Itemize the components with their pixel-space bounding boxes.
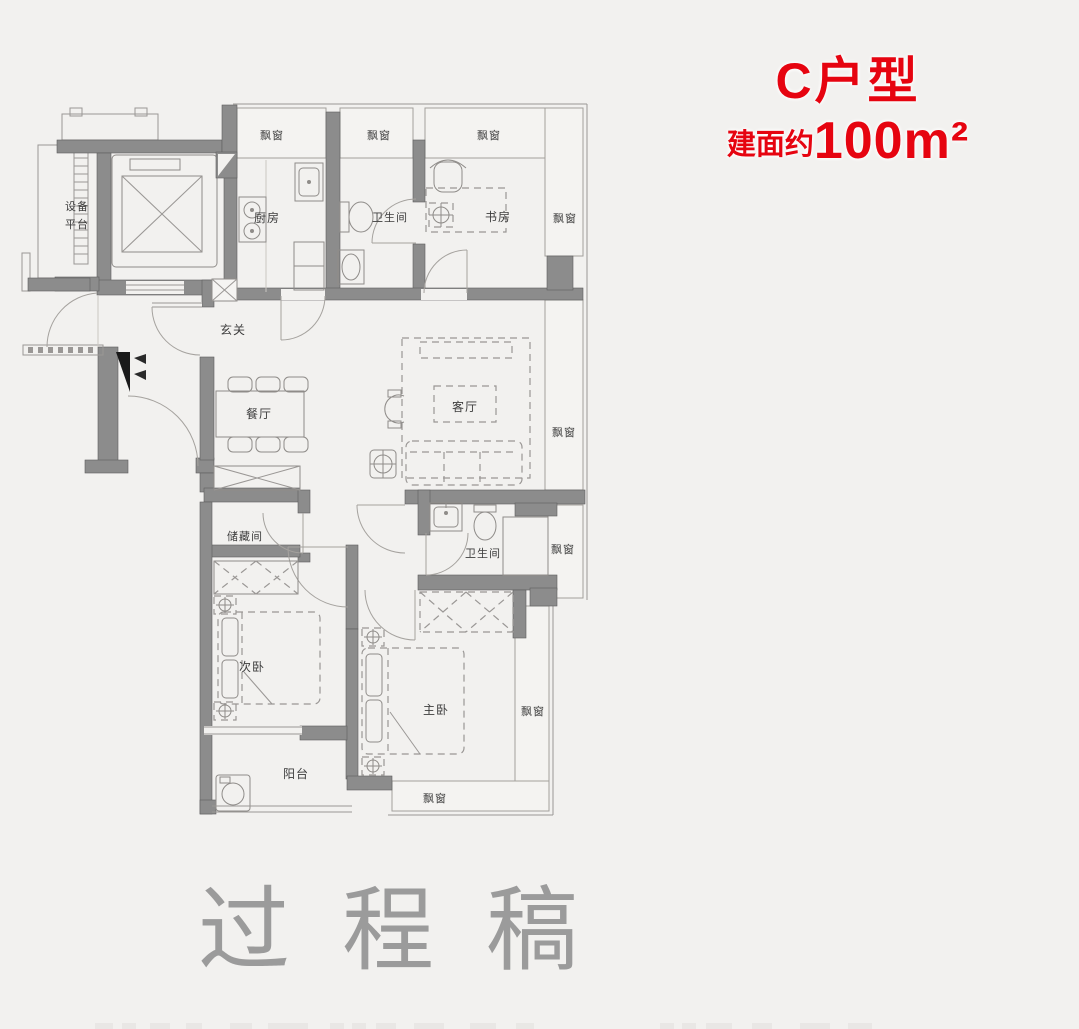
label-bay-window: 飘窗: [551, 542, 575, 556]
unit-type-title: C户型: [712, 54, 984, 109]
unit-area-line: 建面约100m²: [712, 111, 984, 171]
bed: [218, 612, 320, 704]
label-bathroom2: 卫生间: [465, 546, 501, 560]
elevator: [112, 152, 237, 301]
living-furniture: [370, 338, 530, 485]
elevator-car-door: [130, 159, 180, 170]
bedroom2-furniture: [214, 561, 320, 720]
armchair: [385, 390, 404, 428]
roof-ledge: [62, 114, 158, 140]
shaft-corner-box: [216, 152, 237, 178]
label-bay-window: 飘窗: [552, 425, 576, 439]
dining-chair: [228, 377, 252, 392]
scale-bar: [23, 345, 103, 355]
kitchen-sink-icon: [295, 163, 323, 201]
label-second-bedroom: 次卧: [239, 660, 265, 674]
label-storage: 储藏间: [227, 529, 263, 543]
nightstand-lamp-icon: [214, 596, 236, 614]
wardrobe: [214, 561, 298, 594]
label-equipment-platform-2: 平台: [65, 217, 89, 231]
duct-cross-box: [212, 279, 237, 301]
equipment-platform: [22, 108, 158, 291]
label-dining: 餐厅: [246, 406, 272, 421]
room-labels: 设备 平台 厨房 卫生间 书房 玄关 餐厅 客厅 储藏间 卫生间 次卧 主卧 阳…: [65, 128, 577, 805]
dining-chair: [284, 377, 308, 392]
kitchen-fixtures: [239, 160, 324, 292]
outside-door-arc: [47, 293, 97, 347]
hall-door-arc: [357, 505, 405, 553]
label-balcony: 阳台: [283, 766, 309, 781]
label-bathroom1: 卫生间: [372, 210, 408, 224]
sideboard-cabinet: [214, 466, 300, 490]
unit-title-block: C户型 建面约100m²: [712, 54, 984, 171]
study-door-arc: [424, 250, 467, 293]
label-living: 客厅: [452, 399, 478, 414]
bed: [362, 648, 464, 754]
dining-chair: [256, 377, 280, 392]
shower-area: [503, 517, 548, 575]
fridge-icon: [294, 242, 324, 290]
bay-window-study-right: [545, 108, 583, 256]
dining-chair: [228, 437, 252, 452]
toilet-icon: [474, 505, 496, 540]
bottom-crop-artifact: [95, 1023, 872, 1029]
area-value: 100m²: [814, 112, 969, 170]
bath1-fixtures: [338, 202, 373, 284]
label-master-bedroom: 主卧: [423, 703, 449, 717]
tv-console: [420, 342, 512, 358]
label-entry: 玄关: [220, 322, 246, 337]
label-study: 书房: [485, 209, 511, 224]
bath2-door-arc: [426, 533, 468, 575]
ledge-notch: [70, 108, 82, 116]
label-bay-window: 飘窗: [477, 128, 501, 142]
label-bay-window: 飘窗: [367, 128, 391, 142]
basin-icon: [338, 250, 364, 284]
floor-lamp-icon: [370, 450, 396, 478]
label-bay-window: 飘窗: [521, 704, 545, 718]
nightstand-lamp-icon: [362, 628, 384, 646]
entry-door-arc: [152, 307, 200, 355]
kitchen-door-arc: [281, 296, 325, 340]
wardrobe: [420, 592, 513, 632]
nightstand-lamp-icon: [362, 757, 384, 775]
bay-window-living: [545, 300, 583, 490]
label-bay-window: 飘窗: [423, 791, 447, 805]
direction-arrow-icon: [134, 354, 146, 364]
vanity-icon: [430, 503, 462, 531]
label-bay-window: 飘窗: [260, 128, 284, 142]
area-prefix: 建面约: [727, 129, 814, 161]
draft-watermark: 过程稿: [198, 856, 630, 989]
dining-furniture: [214, 377, 308, 490]
ledge-notch: [135, 108, 147, 116]
floorplan-page: 设备 平台 厨房 卫生间 书房 玄关 餐厅 客厅 储藏间 卫生间 次卧 主卧 阳…: [0, 0, 1079, 1029]
label-equipment-platform-1: 设备: [65, 199, 89, 213]
bay-window-master-bottom: [392, 781, 549, 811]
lamp-symbol-icon: [429, 203, 453, 227]
nightstand-lamp-icon: [214, 702, 236, 720]
label-kitchen: 厨房: [254, 210, 280, 225]
corridor-exterior-door-arc: [128, 396, 198, 466]
toilet-icon: [340, 202, 373, 232]
elevator-shaft-cross: [122, 176, 202, 252]
master-furniture: [362, 592, 513, 775]
dining-chair: [256, 437, 280, 452]
direction-arrow-icon: [134, 370, 146, 380]
label-bay-window: 飘窗: [553, 211, 577, 225]
dining-chair: [284, 437, 308, 452]
